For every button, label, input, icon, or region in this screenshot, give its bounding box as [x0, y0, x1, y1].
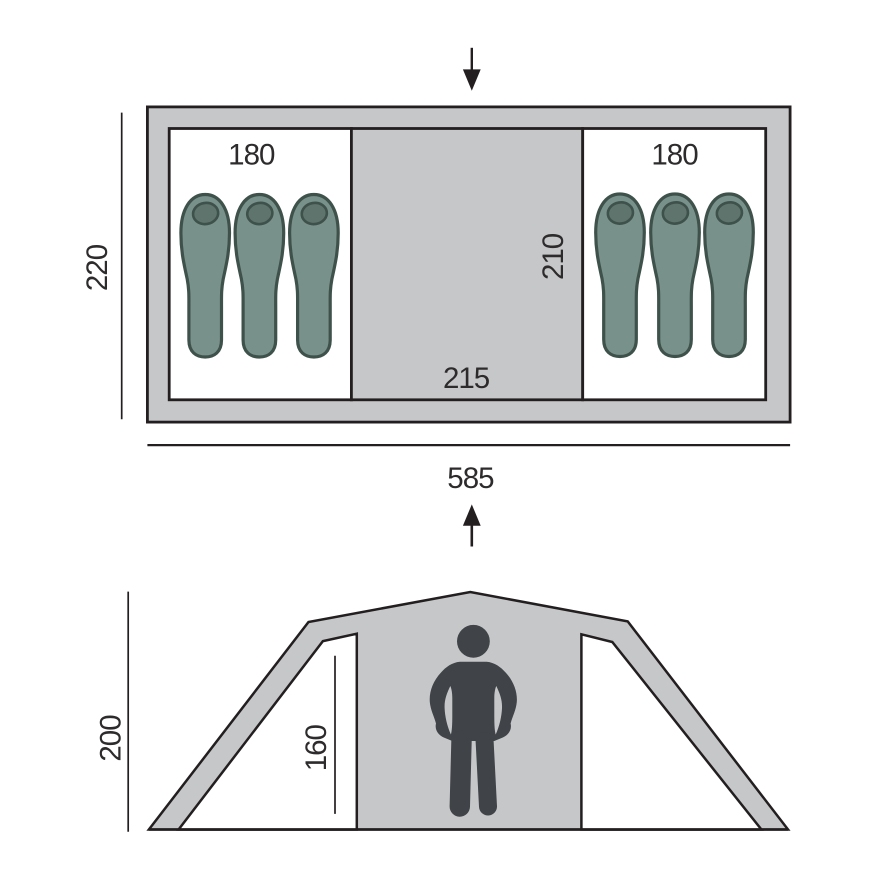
svg-text:180: 180	[651, 139, 698, 172]
svg-text:180: 180	[228, 138, 275, 171]
svg-text:160: 160	[300, 725, 333, 772]
svg-text:210: 210	[537, 233, 570, 280]
svg-text:215: 215	[443, 362, 490, 395]
svg-text:220: 220	[81, 244, 114, 291]
svg-text:200: 200	[95, 715, 128, 762]
svg-text:585: 585	[447, 462, 494, 495]
